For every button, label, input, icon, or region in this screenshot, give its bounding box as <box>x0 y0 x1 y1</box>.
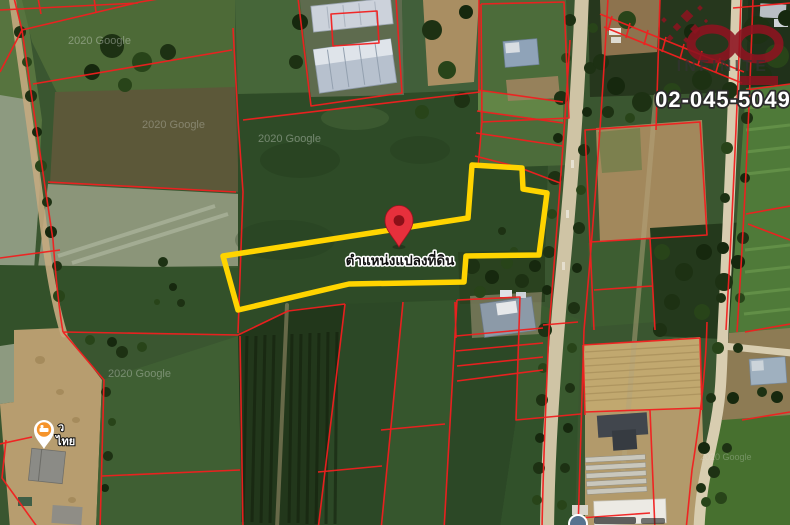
logo-tagline-bar <box>740 76 778 85</box>
poi-label-line1: ว <box>58 422 64 434</box>
phone-number: 02-045-5049 <box>655 87 790 112</box>
google-watermark: 2020 Google <box>258 133 321 145</box>
logo-text: INFINITE <box>677 58 770 75</box>
google-watermark: 2020 Google <box>700 452 752 462</box>
google-watermark: 2020 Google <box>108 368 171 380</box>
plot-location-label: ตำแหน่งแปลงที่ดิน <box>346 250 456 268</box>
poi-label-line2: ไทย <box>54 434 75 448</box>
google-watermark: 2020 Google <box>142 119 205 131</box>
google-watermark: 2020 Google <box>68 35 131 47</box>
satellite-map[interactable]: 2020 Google 2020 Google 2020 Google 2020… <box>0 0 790 525</box>
